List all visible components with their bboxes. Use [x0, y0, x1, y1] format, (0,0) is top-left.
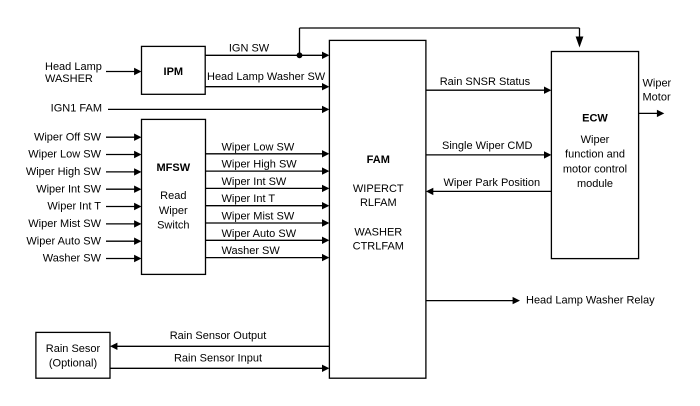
svg-text:Read: Read	[160, 190, 186, 202]
svg-text:Wiper: Wiper	[159, 205, 188, 217]
svg-text:FAM: FAM	[367, 154, 390, 166]
svg-text:Motor: Motor	[643, 91, 671, 103]
svg-text:Wiper Off SW: Wiper Off SW	[34, 131, 102, 143]
svg-text:Wiper Int SW: Wiper Int SW	[36, 183, 101, 195]
svg-text:Wiper Mist SW: Wiper Mist SW	[222, 211, 295, 223]
svg-text:IGN SW: IGN SW	[229, 42, 270, 54]
svg-text:WASHER: WASHER	[45, 73, 93, 85]
svg-text:Wiper Low SW: Wiper Low SW	[28, 149, 101, 161]
svg-text:Wiper High SW: Wiper High SW	[222, 159, 298, 171]
svg-text:Rain Sesor: Rain Sesor	[46, 343, 101, 355]
svg-text:Wiper Int T: Wiper Int T	[47, 201, 101, 213]
svg-text:Wiper: Wiper	[581, 134, 610, 146]
svg-text:Wiper Int SW: Wiper Int SW	[222, 176, 287, 188]
svg-text:Wiper Auto SW: Wiper Auto SW	[26, 235, 101, 247]
svg-text:Wiper High SW: Wiper High SW	[26, 166, 102, 178]
svg-text:CTRLFAM: CTRLFAM	[353, 241, 404, 253]
svg-text:ECW: ECW	[582, 113, 608, 125]
svg-text:Switch: Switch	[157, 220, 189, 232]
svg-text:WIPERCT: WIPERCT	[353, 183, 404, 195]
svg-text:Washer SW: Washer SW	[43, 253, 102, 265]
svg-text:Rain SNSR Status: Rain SNSR Status	[440, 76, 531, 88]
svg-text:Single Wiper CMD: Single Wiper CMD	[442, 140, 533, 152]
svg-text:RLFAM: RLFAM	[360, 197, 397, 209]
svg-text:MFSW: MFSW	[156, 162, 190, 174]
svg-text:module: module	[577, 178, 613, 190]
svg-text:Head Lamp Washer SW: Head Lamp Washer SW	[207, 71, 326, 83]
svg-text:WASHER: WASHER	[354, 227, 402, 239]
svg-text:Wiper Park Position: Wiper Park Position	[444, 177, 541, 189]
svg-text:Head Lamp: Head Lamp	[45, 61, 102, 73]
svg-text:Head Lamp Washer Relay: Head Lamp Washer Relay	[526, 295, 655, 307]
svg-text:Wiper: Wiper	[643, 78, 672, 90]
svg-text:Wiper Int T: Wiper Int T	[222, 193, 276, 205]
svg-text:function and: function and	[565, 149, 625, 161]
svg-text:IPM: IPM	[164, 66, 184, 78]
svg-text:Rain Sensor Input: Rain Sensor Input	[174, 353, 262, 365]
svg-text:motor control: motor control	[563, 163, 627, 175]
svg-text:Wiper Low SW: Wiper Low SW	[222, 141, 295, 153]
svg-text:Rain Sensor Output: Rain Sensor Output	[170, 330, 267, 342]
svg-text:(Optional): (Optional)	[49, 357, 97, 369]
svg-text:Wiper Mist SW: Wiper Mist SW	[28, 218, 101, 230]
svg-text:Washer SW: Washer SW	[222, 245, 281, 257]
svg-text:IGN1 FAM: IGN1 FAM	[51, 103, 102, 115]
svg-text:Wiper Auto SW: Wiper Auto SW	[222, 228, 297, 240]
